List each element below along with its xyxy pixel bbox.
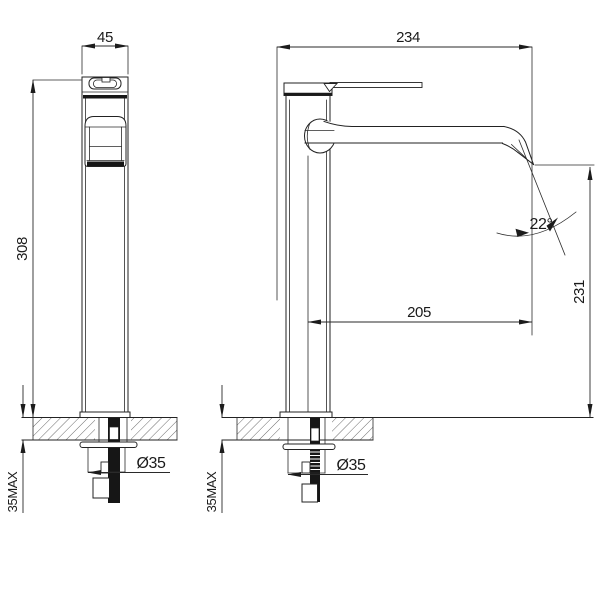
dim-side-reach: 205 <box>308 156 532 412</box>
faucet-dimension-drawing: 45 308 35MAX Ø35 <box>0 0 600 600</box>
front-cap-seam <box>83 95 127 99</box>
dim-side-depth: 234 <box>277 29 532 335</box>
front-view: 45 308 35MAX Ø35 <box>5 29 177 513</box>
front-lever-end <box>89 78 121 90</box>
front-mounting-nut <box>93 478 110 498</box>
front-faucet-body <box>80 77 130 418</box>
dim-side-hole: Ø35 <box>288 457 368 475</box>
side-washer <box>283 444 335 450</box>
front-width-label: 45 <box>97 29 113 46</box>
front-handle-knob <box>85 117 126 167</box>
side-reach-label: 205 <box>407 304 431 321</box>
dim-side-outlet-angle: 22° <box>497 140 576 255</box>
dim-front-deck-thickness: 35MAX <box>5 385 23 513</box>
front-height-label: 308 <box>14 237 31 261</box>
side-view: 234 22° 205 231 35MAX Ø35 <box>204 29 594 513</box>
side-mounting-nut <box>302 484 318 502</box>
side-outlet-height-label: 231 <box>571 280 588 304</box>
front-washer <box>80 442 137 448</box>
side-faucet-body <box>280 83 534 418</box>
side-handle-lever <box>284 83 422 96</box>
dim-front-height: 308 <box>14 80 81 417</box>
front-deck-max-label: 35MAX <box>5 471 20 512</box>
side-spout <box>305 119 534 166</box>
front-deck-section <box>22 418 177 441</box>
technical-drawing-page: 45 308 35MAX Ø35 <box>0 0 600 600</box>
front-base-plate <box>80 412 130 418</box>
side-depth-label: 234 <box>396 29 420 46</box>
side-base-plate <box>280 412 332 418</box>
front-hole-label: Ø35 <box>136 455 166 472</box>
side-hole-label: Ø35 <box>336 457 366 474</box>
side-angle-label: 22° <box>530 216 553 233</box>
dim-front-hole: Ø35 <box>88 455 170 473</box>
side-deck-max-label: 35MAX <box>204 471 219 512</box>
lever-bar <box>330 83 422 88</box>
dim-side-deck-thickness: 35MAX <box>204 385 222 513</box>
dim-front-width: 45 <box>82 29 128 74</box>
side-mounting-shank <box>283 417 335 502</box>
side-deck-section <box>222 418 593 441</box>
